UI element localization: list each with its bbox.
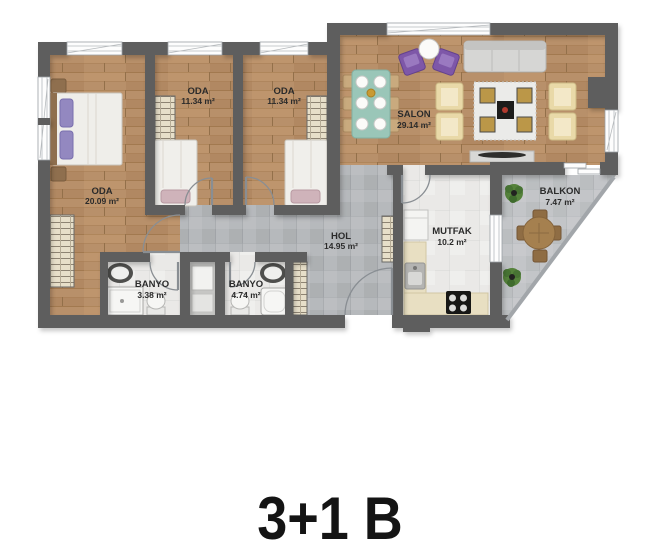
tv — [478, 152, 526, 158]
shaft-panel-2 — [192, 294, 213, 312]
room-label-salon-area: 29.14 m² — [397, 120, 431, 130]
floor-plan-canvas: ODA 20.09 m² ODA 11.34 m² ODA 11.34 m² S… — [0, 0, 660, 555]
pillow — [60, 99, 73, 127]
room-label-bath2-name: BANYO — [229, 279, 263, 290]
room-label-balcony-area: 7.47 m² — [545, 197, 574, 207]
room-label-bedroom1-area: 20.09 m² — [85, 196, 119, 206]
window — [490, 215, 502, 262]
dining-set — [343, 70, 399, 138]
kitchen-sink — [405, 263, 425, 289]
shaft-panel — [192, 266, 213, 290]
sink — [260, 263, 286, 283]
window — [67, 42, 122, 55]
bed-single — [285, 140, 327, 206]
pillow — [291, 190, 320, 203]
wardrobe — [50, 215, 74, 287]
room-label-bedroom3-area: 11.34 m² — [267, 96, 301, 106]
room-label-hall-area: 14.95 m² — [324, 241, 358, 251]
floor-plan-page: ODA 20.09 m² ODA 11.34 m² ODA 11.34 m² S… — [0, 0, 660, 555]
stove — [446, 291, 471, 314]
bed-single — [155, 140, 197, 206]
centerpiece — [367, 89, 375, 97]
window — [38, 77, 50, 160]
window — [260, 42, 308, 55]
room-label-salon-name: SALON — [397, 109, 430, 120]
hall-wardrobe — [293, 262, 307, 315]
room-label-kitchen-area: 10.2 m² — [437, 237, 466, 247]
room-label-bath1-area: 3.38 m² — [137, 290, 166, 300]
sink — [107, 263, 133, 283]
window — [168, 42, 222, 55]
plan-title: 3+1 B — [33, 489, 627, 549]
window — [605, 110, 618, 152]
coffee-table-decor — [502, 107, 508, 113]
side-table — [419, 39, 439, 59]
rug-coffee-table — [474, 82, 536, 140]
bathtub — [261, 288, 288, 315]
tv-console — [470, 151, 534, 162]
sofa — [464, 41, 546, 72]
fridge — [404, 210, 428, 240]
room-label-balcony-name: BALKON — [540, 186, 581, 197]
room-label-bath2-area: 4.74 m² — [231, 290, 260, 300]
nightstand — [51, 167, 66, 181]
pillow — [60, 131, 73, 159]
room-label-bath1-name: BANYO — [135, 279, 169, 290]
wardrobe — [307, 96, 327, 142]
nightstand — [51, 79, 66, 93]
room-label-kitchen-name: MUTFAK — [432, 226, 472, 237]
window — [387, 23, 490, 35]
wardrobe — [155, 96, 175, 142]
room-label-bedroom2-area: 11.34 m² — [181, 96, 215, 106]
